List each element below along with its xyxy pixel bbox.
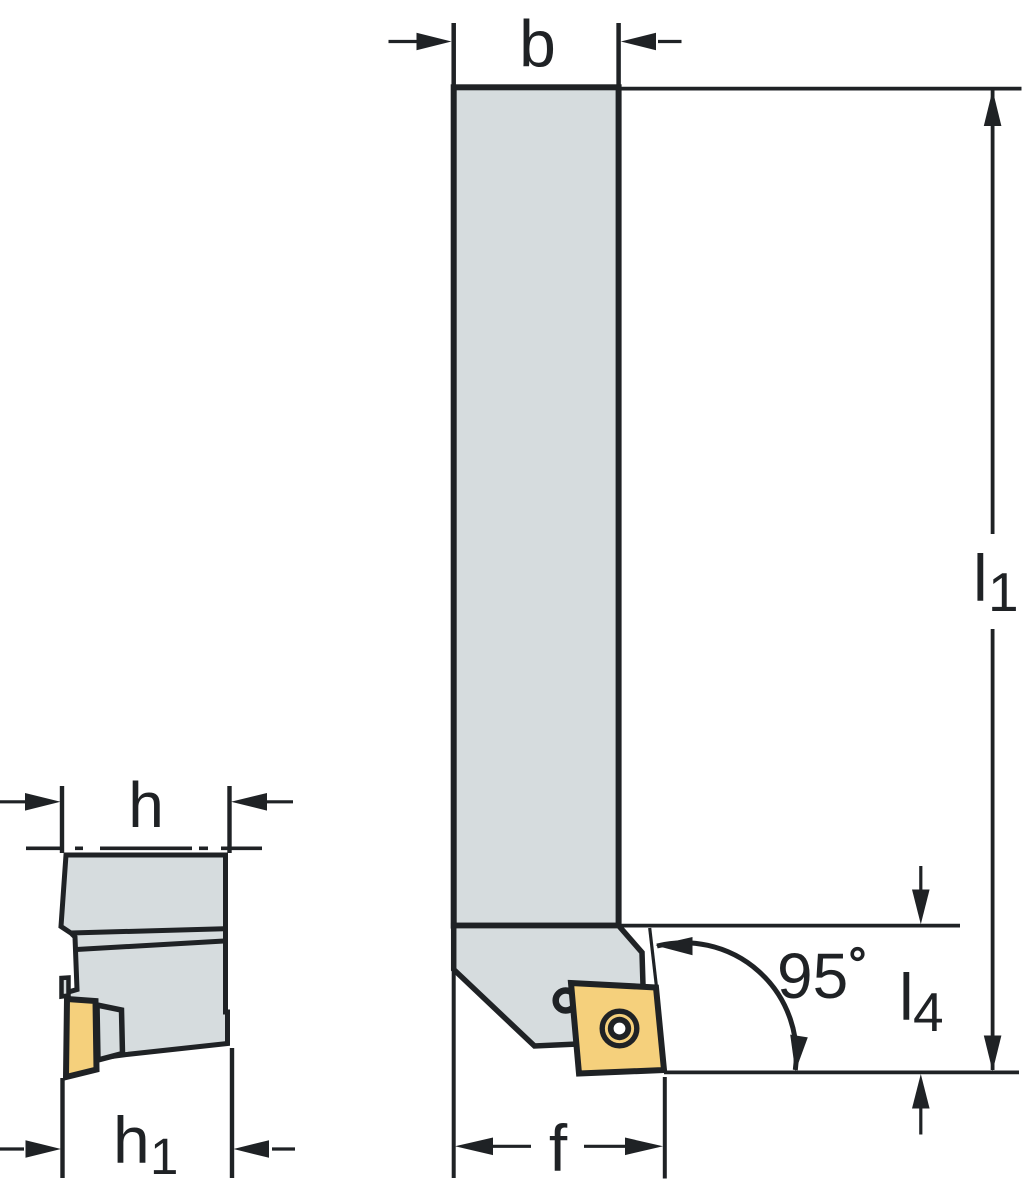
svg-text:l: l xyxy=(899,960,914,1034)
svg-text:b: b xyxy=(519,7,556,81)
svg-text:4: 4 xyxy=(913,981,944,1043)
svg-text:f: f xyxy=(549,1111,568,1185)
svg-text:95: 95 xyxy=(777,940,848,1012)
svg-text:h: h xyxy=(128,769,164,841)
svg-text:l: l xyxy=(973,541,988,615)
svg-text:1: 1 xyxy=(150,1128,178,1185)
svg-text:h: h xyxy=(113,1103,150,1177)
svg-text:1: 1 xyxy=(988,561,1019,623)
